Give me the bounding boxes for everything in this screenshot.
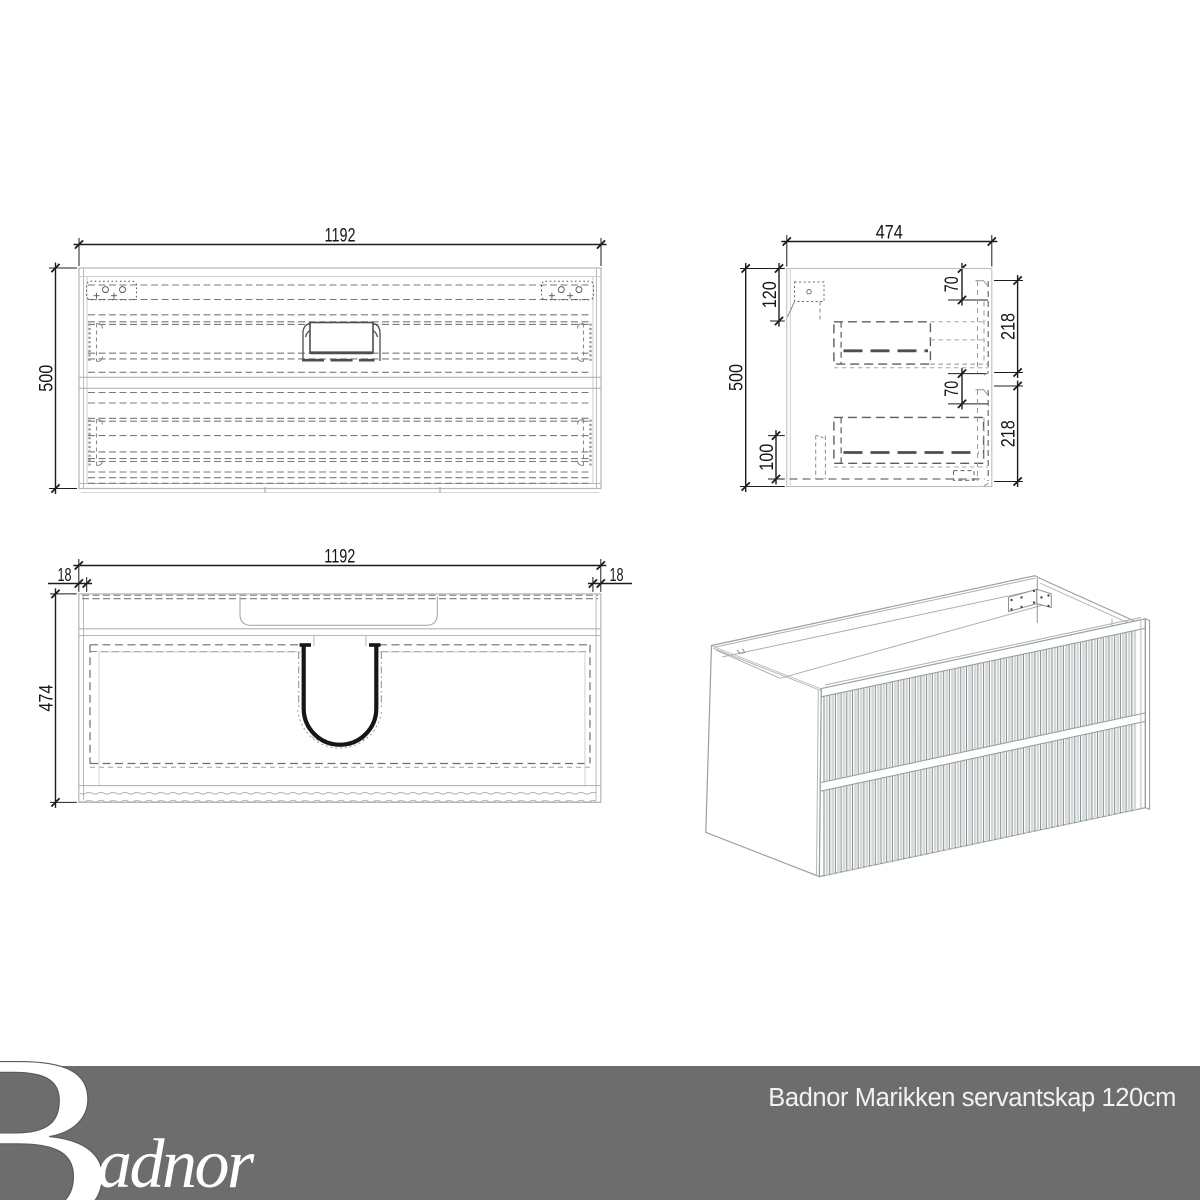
- svg-text:18: 18: [58, 564, 72, 585]
- svg-text:100: 100: [756, 444, 778, 471]
- svg-text:70: 70: [941, 276, 963, 292]
- svg-text:1192: 1192: [324, 546, 355, 568]
- svg-text:500: 500: [726, 364, 748, 391]
- svg-text:120: 120: [759, 281, 781, 308]
- svg-text:474: 474: [876, 222, 903, 244]
- svg-text:218: 218: [998, 313, 1020, 340]
- svg-text:70: 70: [941, 381, 963, 397]
- svg-text:218: 218: [998, 420, 1020, 447]
- svg-text:Badnor Marikken servantskap 12: Badnor Marikken servantskap 120cm: [768, 1084, 1176, 1112]
- svg-text:474: 474: [36, 684, 58, 711]
- svg-text:18: 18: [610, 564, 624, 585]
- svg-text:1192: 1192: [325, 225, 356, 247]
- svg-text:adnor: adnor: [97, 1126, 255, 1200]
- svg-text:500: 500: [36, 365, 58, 392]
